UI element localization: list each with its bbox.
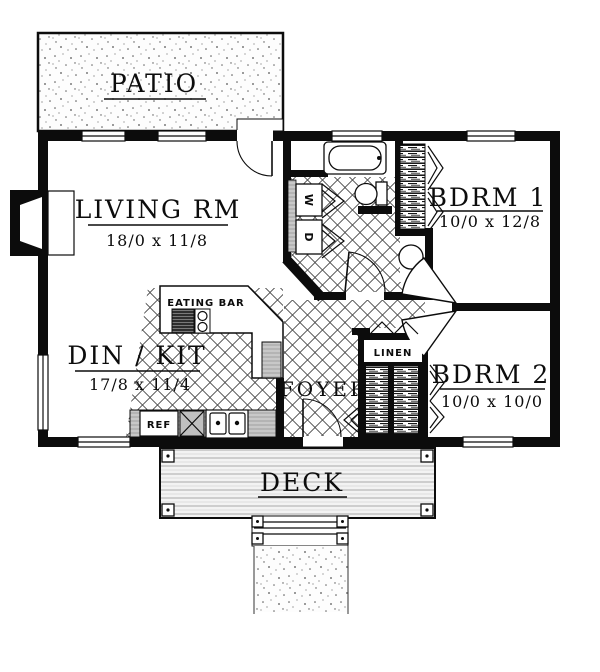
foyer-closet-rod	[366, 366, 388, 434]
ref-label: REF	[147, 420, 171, 431]
wall-tub-foot	[283, 170, 328, 177]
wall-bdrm-divider	[452, 303, 560, 311]
patio-door-opening	[237, 130, 273, 142]
deck-area: DECK	[160, 448, 435, 614]
range-x-box	[180, 411, 204, 436]
walkway-path	[254, 546, 348, 612]
living-dims: 18/0 x 11/8	[106, 231, 208, 250]
entry-door-opening	[303, 436, 343, 448]
bdrm2-label: BDRM 2	[432, 360, 551, 389]
floor-plan-page: PATIO	[0, 0, 600, 672]
kitchen-sink	[206, 410, 248, 438]
wall-east	[550, 131, 560, 447]
cooktop	[172, 309, 194, 333]
bdrm1-dims: 10/0 x 12/8	[439, 212, 541, 231]
linen-label: LINEN	[374, 348, 413, 359]
window-living-north-1	[82, 131, 125, 141]
window-dining-west	[38, 355, 48, 430]
bathtub-drain	[377, 156, 381, 160]
fireplace	[10, 190, 74, 256]
patio-door-landing	[237, 119, 283, 131]
window-bath-north	[332, 131, 382, 141]
fireplace-firebox	[20, 197, 42, 249]
walkway	[254, 546, 348, 614]
window-bdrm2-south	[463, 437, 513, 447]
wall-toilet-stub	[358, 206, 392, 214]
toilet-tank	[376, 182, 387, 205]
floor-plan-drawing: PATIO	[0, 0, 600, 672]
dinkit-dims: 17/8 x 11/4	[89, 375, 191, 394]
bdrm2-closet-rod	[394, 366, 418, 434]
laundry-counter-strip	[288, 180, 296, 252]
bdrm2-dims: 10/0 x 10/0	[441, 392, 543, 411]
deck-steps	[252, 516, 348, 546]
window-bdrm1-north	[467, 131, 515, 141]
patio-label: PATIO	[110, 69, 198, 98]
patio-area: PATIO	[38, 33, 283, 131]
bdrm1-closet-rod	[400, 144, 425, 230]
window-dining-south	[78, 437, 130, 447]
washer-label: W	[302, 194, 315, 206]
dryer-label: D	[302, 232, 315, 241]
kitchen-side-counter	[262, 342, 281, 378]
toilet-bowl	[355, 184, 377, 205]
bdrm1-label: BDRM 1	[429, 183, 548, 212]
foyer-tile-floor	[284, 300, 358, 437]
window-living-north-2	[158, 131, 206, 141]
fireplace-hearth	[48, 191, 74, 255]
deck-label: DECK	[260, 468, 344, 497]
bathtub-basin	[329, 146, 381, 170]
eating-bar-label: EATING BAR	[167, 298, 244, 309]
living-label: LIVING RM	[75, 195, 242, 224]
dinkit-label: DIN / KIT	[67, 341, 206, 370]
foyer-label: FOYER	[280, 377, 368, 401]
